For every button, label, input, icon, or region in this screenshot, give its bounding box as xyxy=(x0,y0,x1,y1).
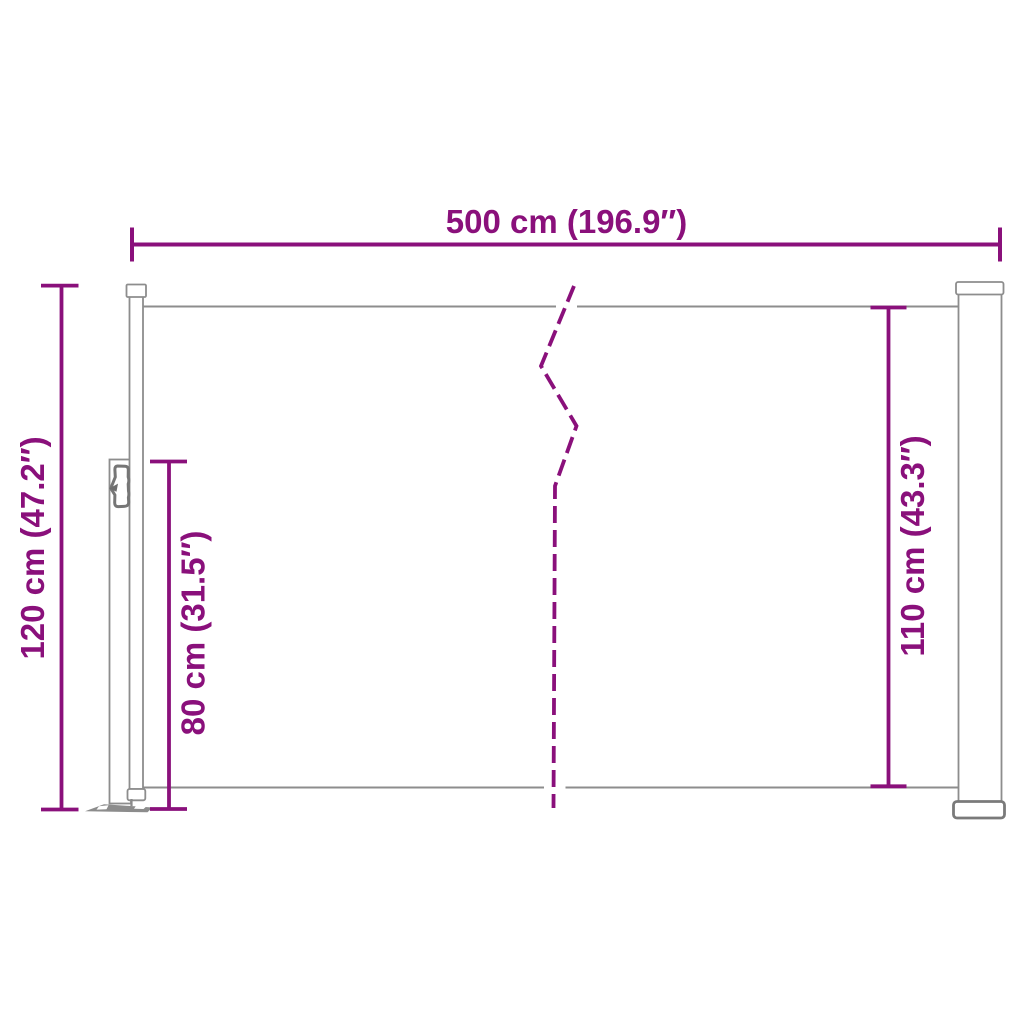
svg-text:120 cm (47.2″): 120 cm (47.2″) xyxy=(14,436,51,659)
svg-text:500 cm (196.9″): 500 cm (196.9″) xyxy=(446,203,687,240)
svg-text:80 cm (31.5″): 80 cm (31.5″) xyxy=(175,531,212,736)
svg-text:110 cm (43.3″): 110 cm (43.3″) xyxy=(894,435,931,656)
